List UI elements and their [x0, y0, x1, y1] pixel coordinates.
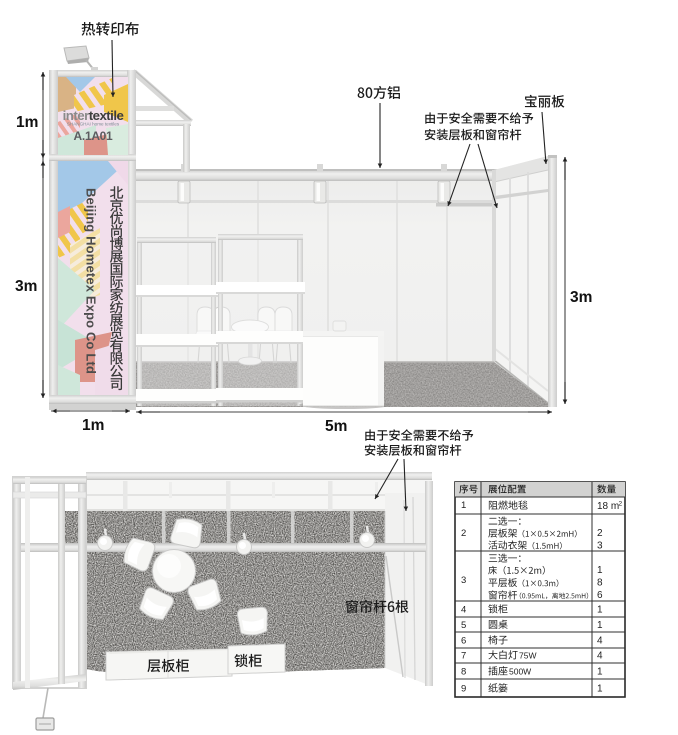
- svg-text:1: 1: [597, 605, 603, 616]
- svg-text:A.1A01: A.1A01: [74, 129, 114, 143]
- svg-text:2: 2: [619, 501, 623, 508]
- svg-text:SHANGHAI home textiles: SHANGHAI home textiles: [67, 122, 120, 127]
- svg-text:4: 4: [597, 651, 603, 662]
- svg-text:8: 8: [461, 667, 466, 678]
- svg-text:9: 9: [461, 684, 466, 695]
- svg-text:2: 2: [461, 528, 466, 539]
- svg-text:500W: 500W: [509, 667, 531, 677]
- svg-text:2: 2: [597, 528, 603, 539]
- svg-text:4: 4: [461, 605, 466, 616]
- svg-text:3: 3: [597, 541, 603, 552]
- svg-text:1m: 1m: [16, 114, 38, 131]
- svg-text:5: 5: [461, 620, 466, 631]
- svg-text:75W: 75W: [519, 651, 536, 661]
- svg-text:1: 1: [597, 620, 603, 631]
- svg-text:3m: 3m: [570, 289, 592, 306]
- svg-text:3: 3: [461, 575, 466, 586]
- svg-text:8: 8: [597, 578, 603, 589]
- svg-text:4: 4: [597, 636, 603, 647]
- svg-text:1: 1: [461, 500, 466, 511]
- svg-text:1: 1: [597, 684, 603, 695]
- svg-text:6: 6: [461, 636, 466, 647]
- svg-text:18 m: 18 m: [597, 501, 619, 512]
- svg-text:1: 1: [597, 565, 603, 576]
- svg-text:6: 6: [597, 590, 603, 601]
- svg-text:1m: 1m: [82, 417, 104, 434]
- svg-text:3m: 3m: [15, 278, 37, 295]
- svg-text:1: 1: [597, 667, 603, 678]
- svg-text:Beijing Hometex Expo Co Ltd: Beijing Hometex Expo Co Ltd: [84, 188, 99, 374]
- svg-text:5m: 5m: [325, 418, 347, 435]
- svg-text:7: 7: [461, 651, 466, 662]
